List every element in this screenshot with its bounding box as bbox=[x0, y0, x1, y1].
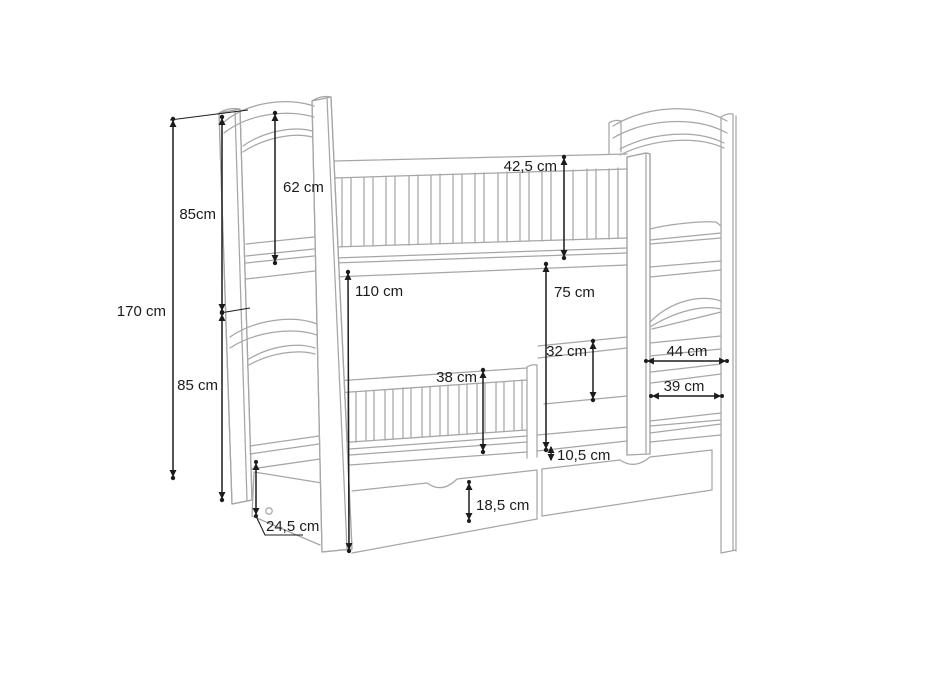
dim-lower-section-height: 85 cm bbox=[177, 311, 224, 502]
dim-total-height-label: 170 cm bbox=[117, 303, 166, 320]
dim-drawer-side-depth: 24,5 cm bbox=[254, 460, 319, 535]
dim-ladder-39-label: 39 cm bbox=[664, 378, 705, 395]
ladder-stile bbox=[627, 153, 650, 455]
bed-line-drawing bbox=[219, 97, 736, 554]
dim-ladder-width-bottom: 39 cm bbox=[649, 378, 724, 398]
left-headboard bbox=[219, 97, 352, 553]
dim-guard-38-label: 38 cm bbox=[436, 369, 477, 386]
dim-ladder-44-label: 44 cm bbox=[667, 343, 708, 360]
dim-drawer-245-label: 24,5 cm bbox=[266, 518, 319, 535]
dim-upper-section-label: 85cm bbox=[179, 206, 216, 223]
upper-bunk-guard-rail bbox=[334, 154, 627, 247]
dim-top-guard-rail-label: 42,5 cm bbox=[504, 158, 557, 175]
dim-total-height: 170 cm bbox=[117, 117, 175, 480]
dim-space-75-label: 75 cm bbox=[554, 284, 595, 301]
upper-bunk-mattress bbox=[650, 222, 721, 244]
dim-rail-to-drawer-gap: 10,5 cm bbox=[551, 447, 610, 464]
dim-gap-32-label: 32 cm bbox=[546, 343, 587, 360]
dim-top-guard-rail: 42,5 cm bbox=[504, 155, 567, 260]
dim-upper-section-height: 85cm bbox=[179, 115, 224, 314]
upper-bunk-frame-rail bbox=[334, 238, 627, 277]
dim-drawer-front-height: 18,5 cm bbox=[467, 480, 529, 523]
dim-headboard-panel-label: 62 cm bbox=[283, 179, 324, 196]
dim-ladder-rail-gap: 32 cm bbox=[546, 339, 595, 402]
dim-lower-section-label: 85 cm bbox=[177, 377, 218, 394]
dim-drawer-185-label: 18,5 cm bbox=[476, 497, 529, 514]
dim-ladder-width-top: 44 cm bbox=[644, 343, 729, 363]
drawer-knob-hole bbox=[266, 508, 272, 514]
upper-bunk-bedding bbox=[650, 299, 721, 329]
drawing-canvas: 170 cm 85cm 62 cm 85 cm 110 cm 42,5 cm bbox=[0, 0, 928, 686]
dim-clearance-110-label: 110 cm bbox=[355, 283, 403, 300]
bunk-bed-dimension-drawing: 170 cm 85cm 62 cm 85 cm 110 cm 42,5 cm bbox=[0, 0, 928, 686]
dim-gap-105-label: 10,5 cm bbox=[557, 447, 610, 464]
